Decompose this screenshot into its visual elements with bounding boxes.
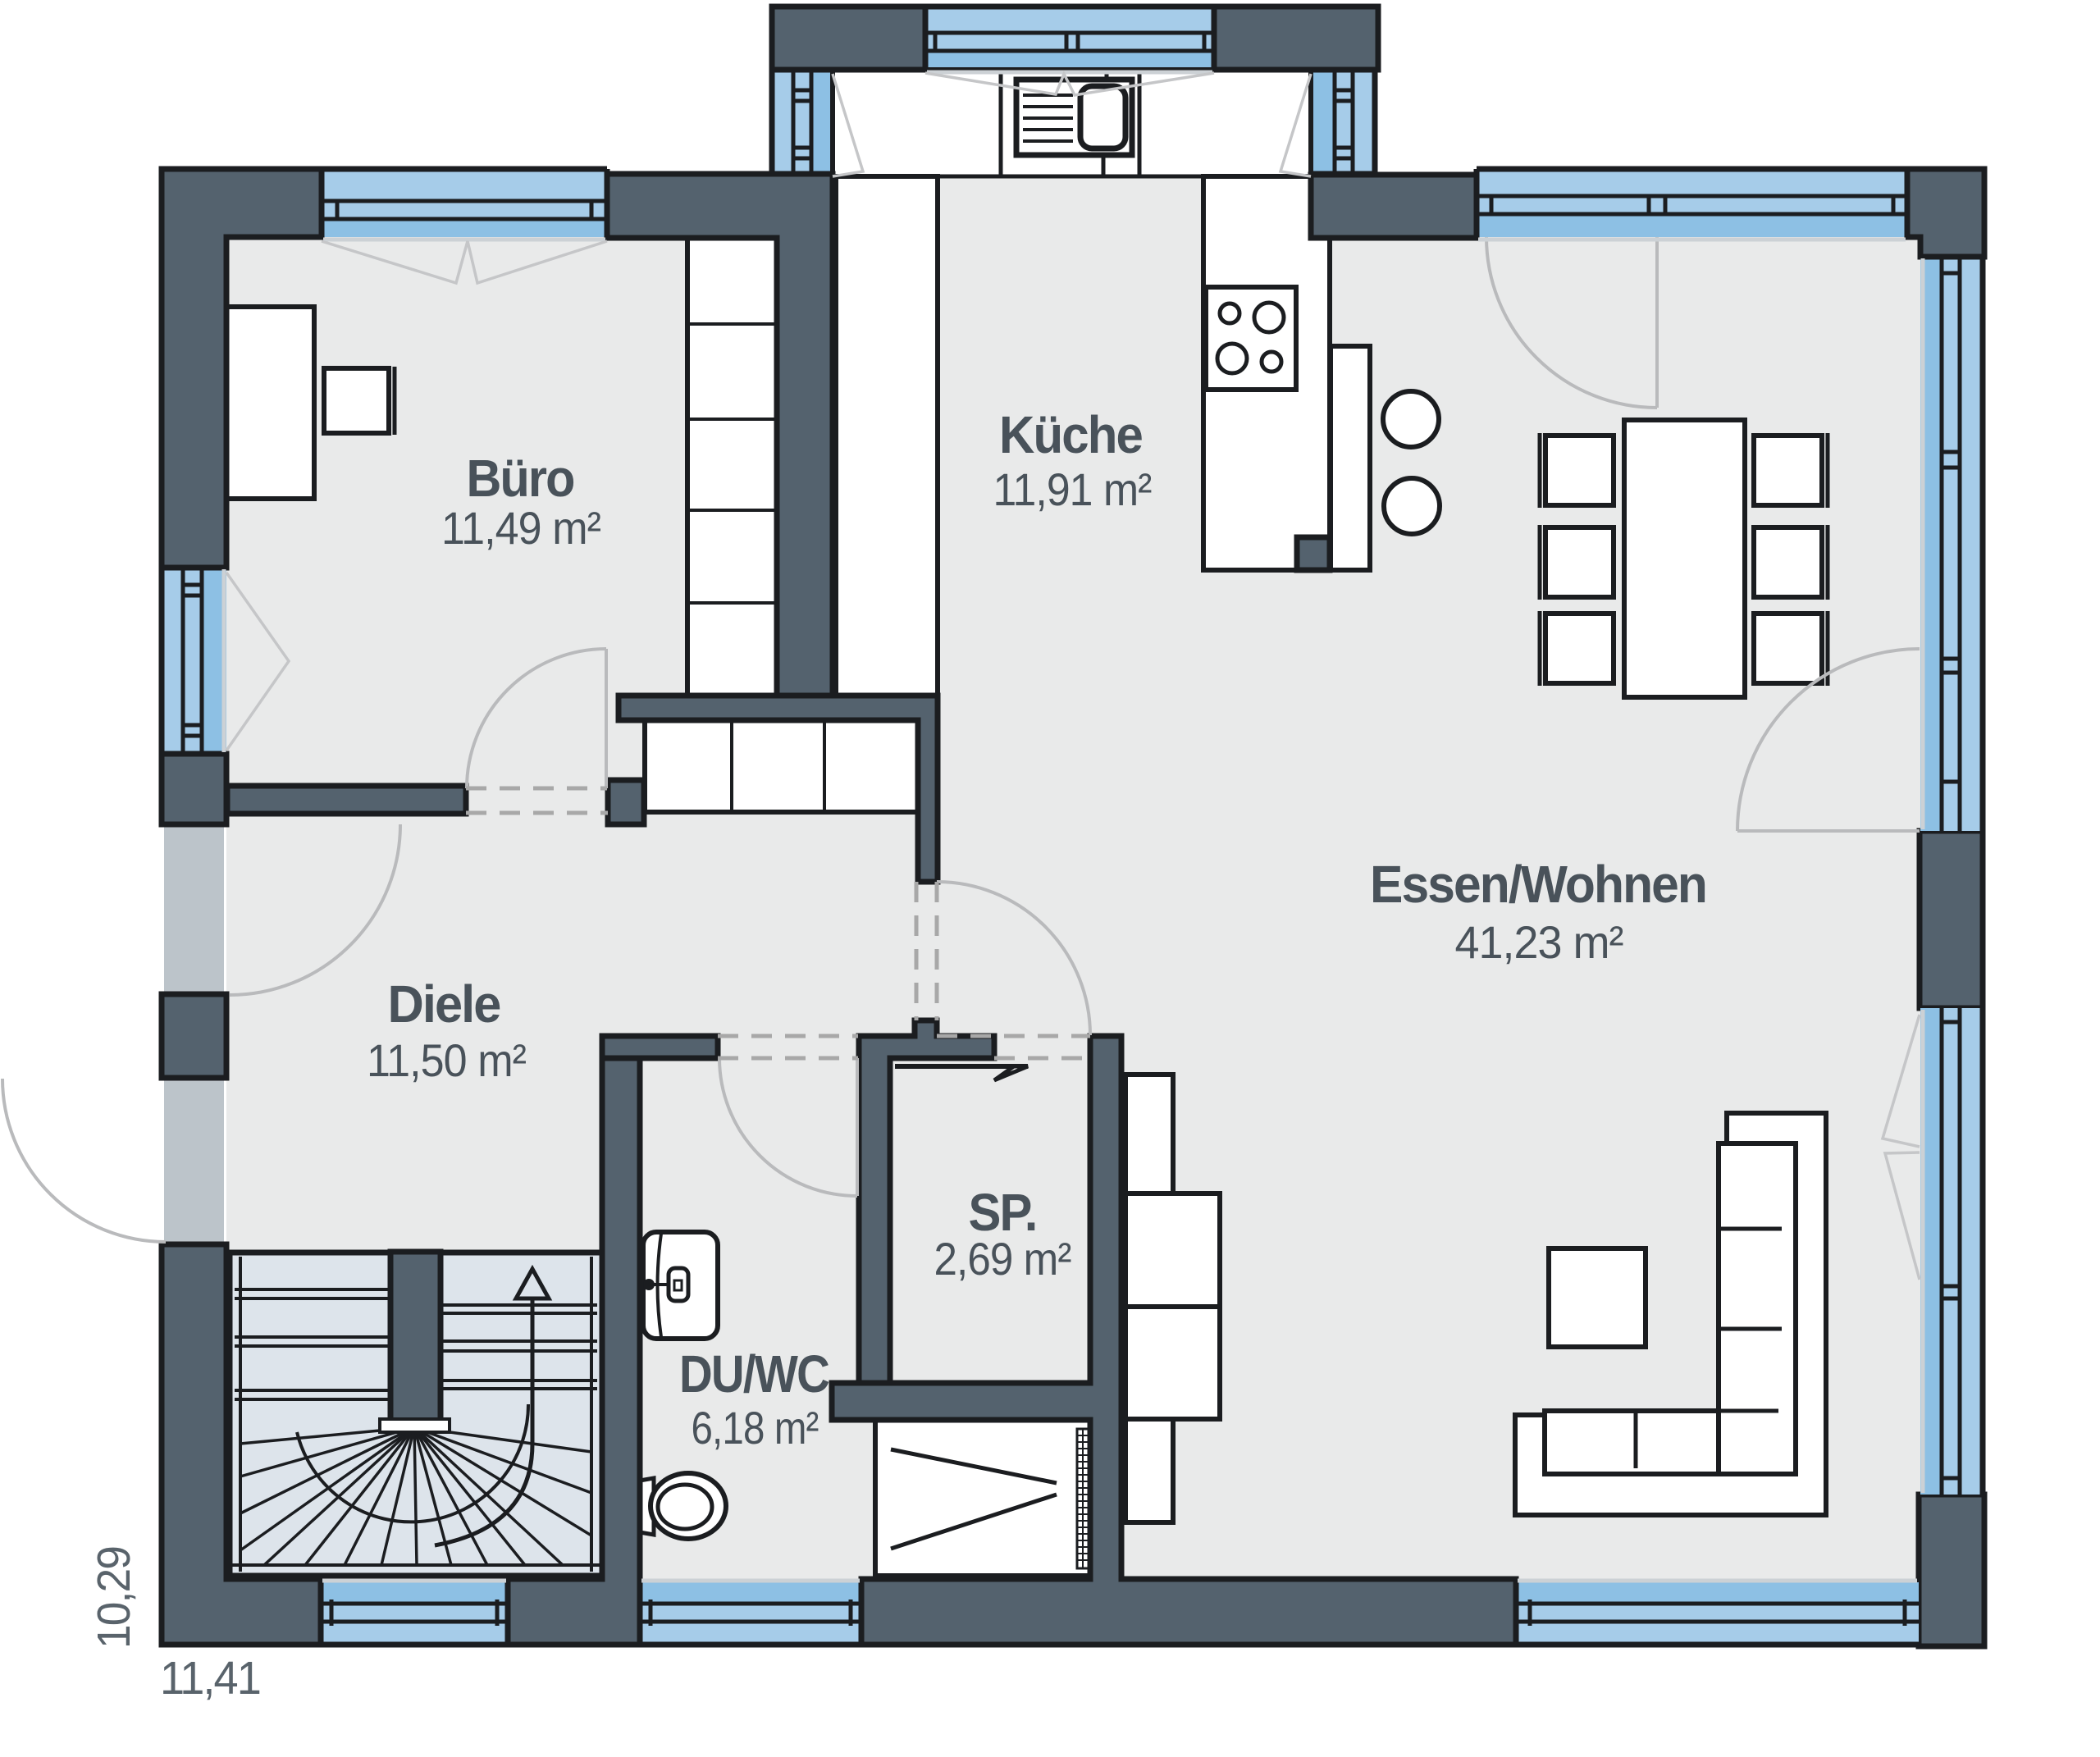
svg-text:11,91 m²: 11,91 m² [993,463,1152,515]
svg-text:6,18 m²: 6,18 m² [692,1402,819,1454]
svg-text:11,41: 11,41 [160,1652,260,1705]
svg-text:Küche: Küche [999,405,1142,464]
svg-text:41,23 m²: 41,23 m² [1455,916,1623,968]
svg-text:11,50 m²: 11,50 m² [367,1034,526,1086]
svg-text:10,29: 10,29 [88,1547,140,1649]
svg-text:Büro: Büro [467,449,574,508]
svg-text:11,49 m²: 11,49 m² [441,502,600,554]
svg-text:DU/WC: DU/WC [679,1344,829,1403]
svg-text:Essen/Wohnen: Essen/Wohnen [1370,855,1706,914]
svg-text:Diele: Diele [388,974,500,1034]
svg-text:2,69 m²: 2,69 m² [934,1233,1071,1285]
